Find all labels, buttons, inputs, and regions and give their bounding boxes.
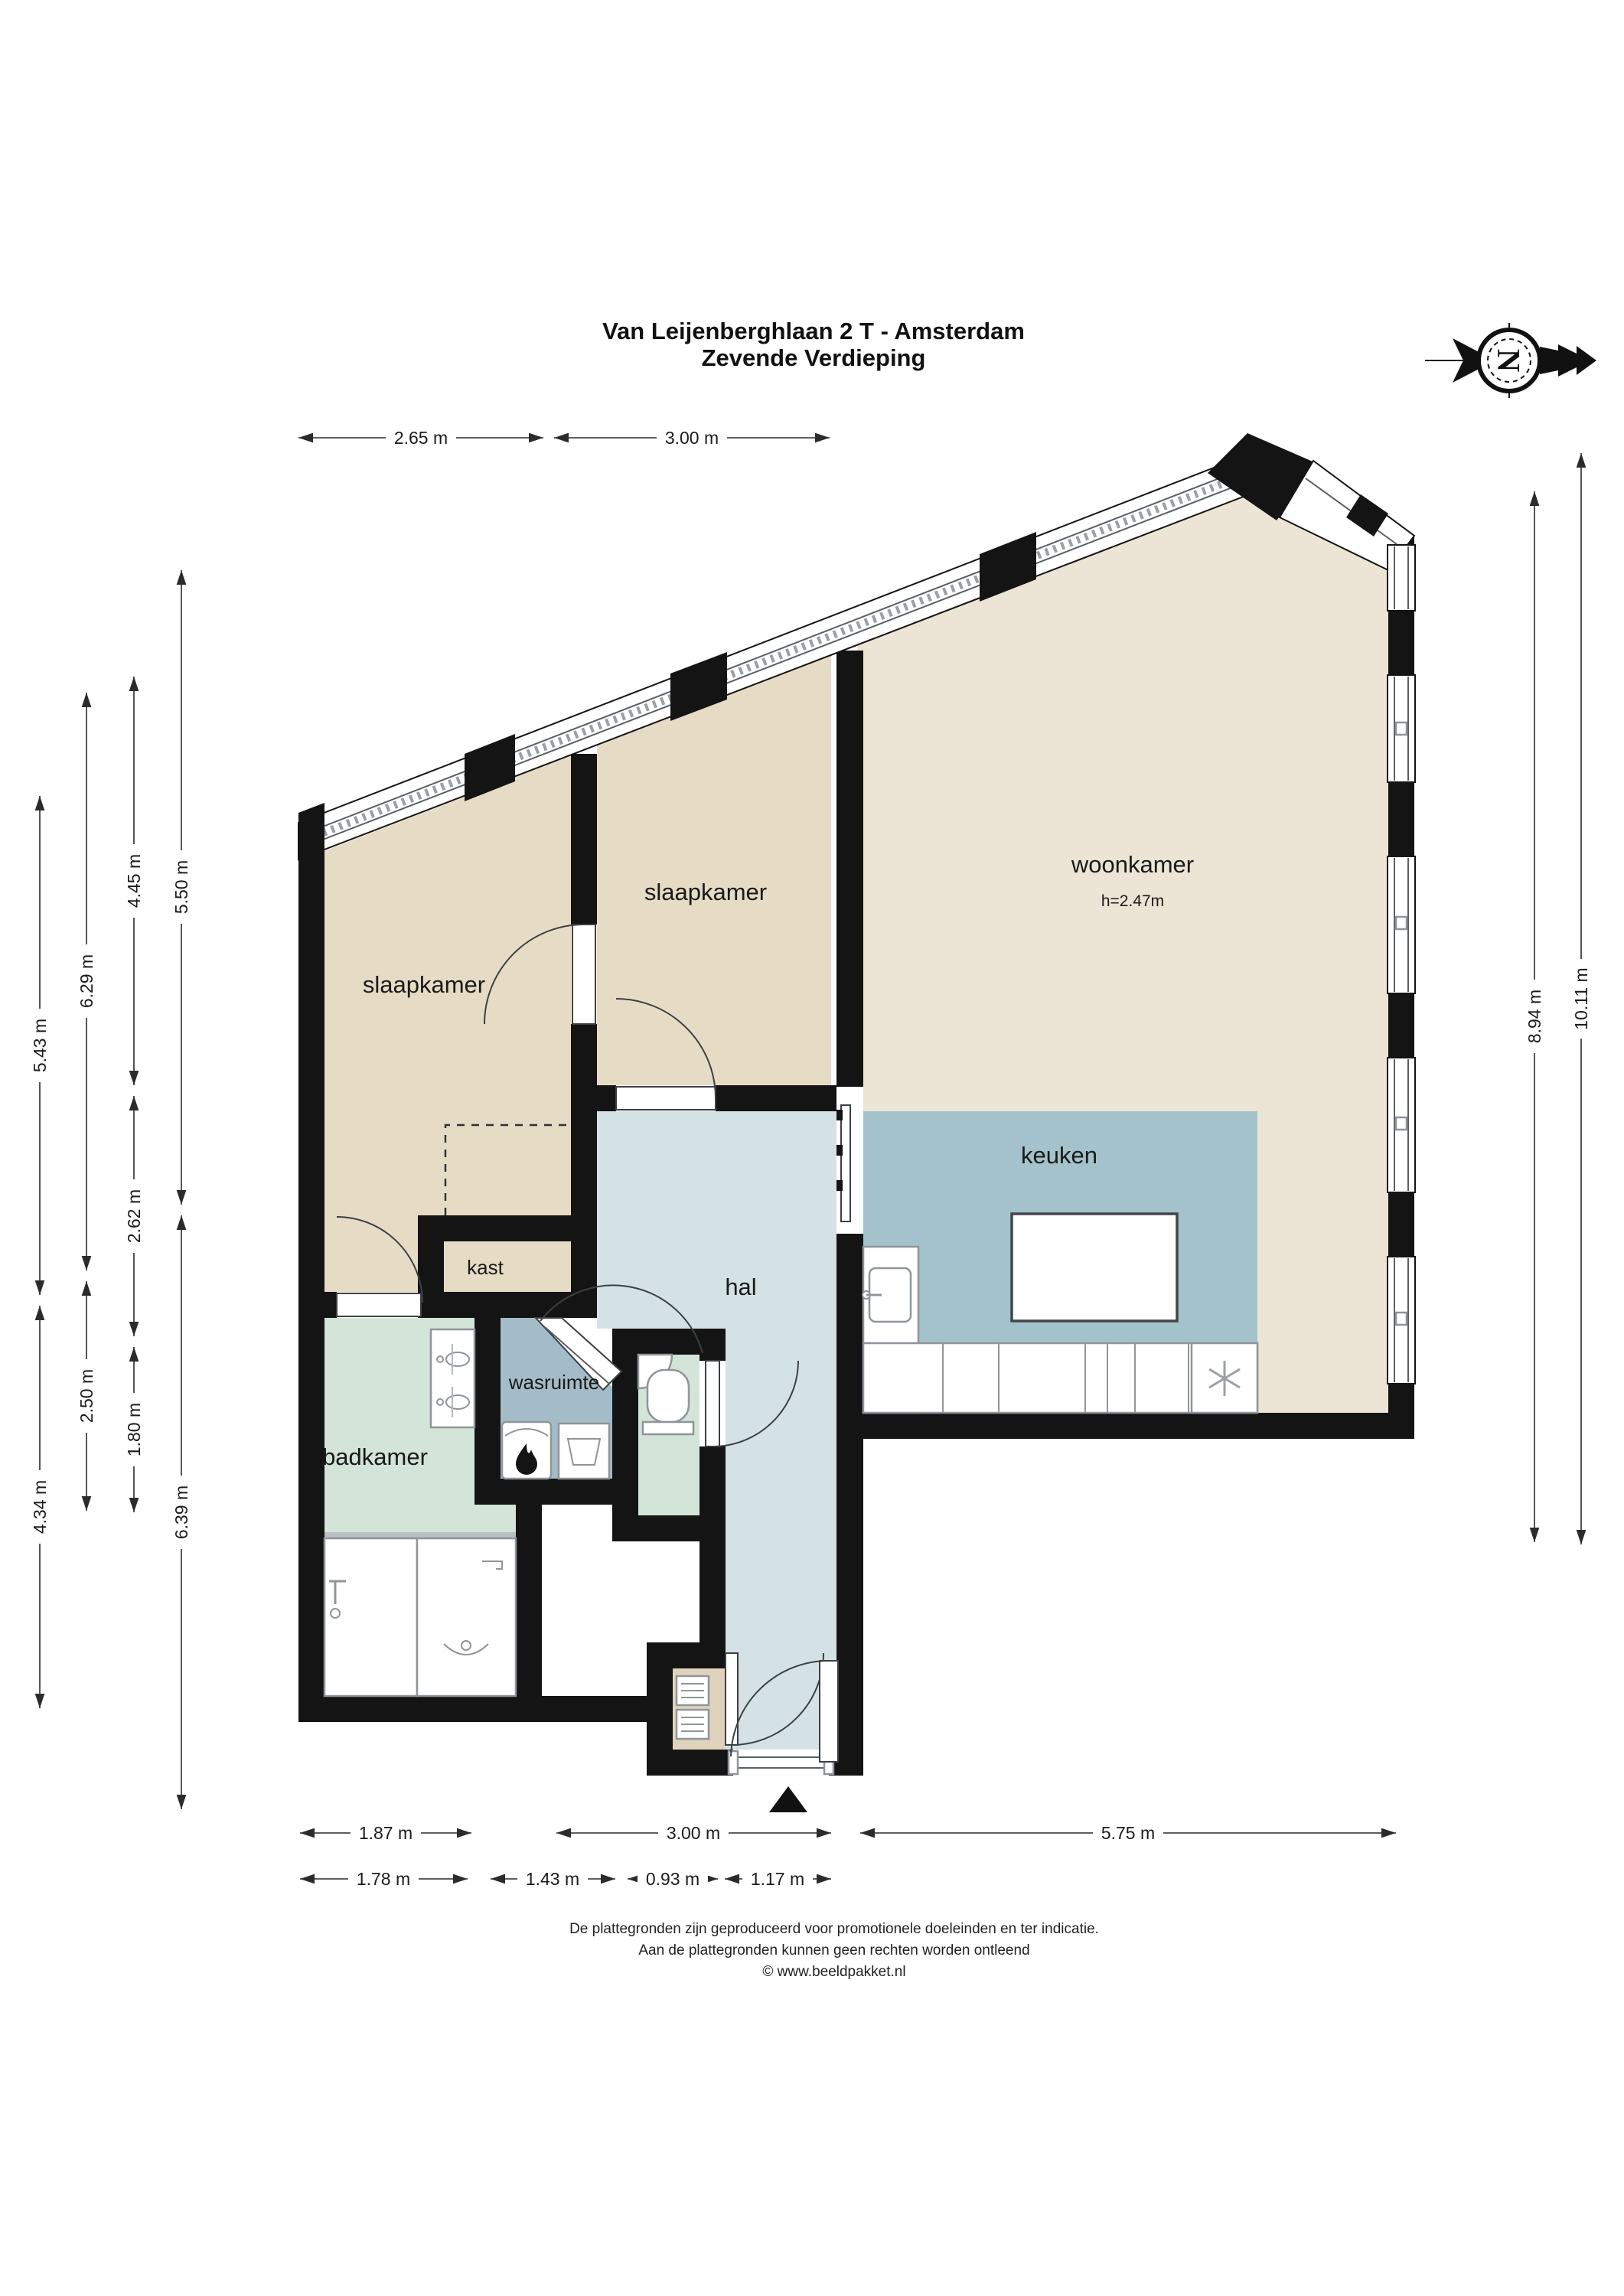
dim-bottom-a3: 5.75 m [860,1823,1396,1843]
svg-text:1.80 m: 1.80 m [124,1403,144,1456]
svg-text:6.39 m: 6.39 m [171,1486,191,1539]
wall-corridor-left [699,1541,726,1645]
entrance-arrow-icon [769,1786,807,1812]
svg-text:2.65 m: 2.65 m [394,428,448,448]
svg-text:0.93 m: 0.93 m [646,1869,699,1889]
wall-toilet-left [612,1329,638,1541]
wall-bottom-living [863,1413,1414,1439]
dim-left-a1: 5.43 m [28,796,51,1295]
wall-bedroom-divider-lower [571,1024,597,1318]
title-line2: Zevende Verdieping [702,344,926,371]
wall-left [298,813,324,1722]
dim-bottom-a2: 3.00 m [556,1823,831,1843]
svg-text:6.29 m: 6.29 m [77,954,96,1008]
dim-bottom-b4: 1.17 m [725,1869,831,1889]
svg-text:1.87 m: 1.87 m [359,1823,413,1843]
window-segment [1388,1058,1415,1192]
svg-text:5.50 m: 5.50 m [171,860,191,914]
dim-bottom-b3: 0.93 m [628,1869,718,1889]
footer-line2: Aan de plattegronden kunnen geen rechten… [638,1942,1029,1958]
dim-left-a2: 4.34 m [28,1306,51,1708]
dim-left-d1: 5.50 m [170,570,193,1205]
dim-left-b1: 6.29 m [75,693,98,1270]
svg-text:3.00 m: 3.00 m [665,428,719,448]
wall-meterkast-top [647,1642,726,1668]
dim-top-2: 3.00 m [554,428,830,448]
label-hal: hal [725,1274,756,1300]
wall-badkamer-right-lower [516,1505,542,1722]
label-slaapkamer-mid: slaapkamer [644,879,767,905]
dim-left-c1: 4.45 m [122,677,145,1085]
footer-line1: De plattegronden zijn geproduceerd voor … [569,1921,1099,1937]
title-line1: Van Leijenberghlaan 2 T - Amsterdam [602,318,1025,344]
plan-title: Van Leijenberghlaan 2 T - Amsterdam Zeve… [602,318,1025,371]
dim-left-d2: 6.39 m [170,1215,193,1809]
svg-text:1.17 m: 1.17 m [751,1869,804,1889]
label-wasruimte: wasruimte [508,1371,599,1394]
sliding-opening-woonkamer [836,1087,863,1234]
dim-left-c3: 1.80 m [122,1347,145,1512]
dim-left-c2: 2.62 m [122,1096,145,1336]
window-segment [1388,675,1415,782]
compass-letter: N [1490,349,1525,372]
dim-bottom-b2: 1.43 m [491,1869,615,1889]
dim-left-b2: 2.50 m [75,1281,98,1511]
window-segment [1388,545,1415,611]
label-ceiling-height: h=2.47m [1101,892,1164,910]
toilet-cistern [643,1422,693,1434]
footer-line3: © www.beeldpakket.nl [762,1964,905,1980]
svg-text:8.94 m: 8.94 m [1525,990,1544,1043]
floor-plan-page: Van Leijenberghlaan 2 T - Amsterdam Zeve… [0,0,1624,2296]
svg-text:5.43 m: 5.43 m [30,1019,50,1072]
svg-text:1.43 m: 1.43 m [526,1869,579,1889]
dim-right-2: 10.11 m [1570,453,1593,1544]
footer-disclaimer: De plattegronden zijn geproduceerd voor … [569,1921,1099,1980]
window-segment [1388,1257,1415,1384]
wall-slaapkamer-woonkamer [836,651,863,1087]
wall-slaapkamer2-hal-right [716,1085,836,1111]
wall-toilet-right-upper [699,1329,726,1361]
wall-entrance-bottom-left [647,1750,733,1776]
dim-bottom-a1: 1.87 m [300,1823,471,1843]
compass-north-icon: N [1425,323,1596,398]
dim-bottom-b1: 1.78 m [300,1869,468,1889]
wall-slaapkamer2-hal-left [597,1085,616,1111]
svg-text:2.50 m: 2.50 m [77,1369,96,1423]
dim-right-1: 8.94 m [1523,491,1546,1542]
toilet-bowl [647,1370,689,1422]
label-keuken: keuken [1021,1142,1097,1169]
label-badkamer: badkamer [322,1443,428,1470]
label-woonkamer: woonkamer [1071,851,1194,878]
floor-plan-canvas: Van Leijenberghlaan 2 T - Amsterdam Zeve… [0,0,1624,2296]
kitchen-island [1012,1214,1177,1321]
wall-bottom-left-block [298,1696,673,1722]
svg-text:4.45 m: 4.45 m [124,854,144,908]
label-kast: kast [467,1256,504,1279]
room-kast-floor [444,1241,571,1292]
svg-text:10.11 m: 10.11 m [1571,967,1591,1029]
washing-machine [559,1424,609,1479]
wall-corridor-right [836,1439,863,1776]
wall-kast-top [418,1215,597,1241]
wall-badkamer-wasruimte [474,1318,501,1505]
svg-text:4.34 m: 4.34 m [30,1480,50,1534]
svg-text:2.62 m: 2.62 m [124,1189,144,1243]
wall-hal-keuken [836,1234,863,1439]
label-slaapkamer-left: slaapkamer [363,971,485,998]
wall-bedroom-divider-upper [571,754,597,925]
svg-text:5.75 m: 5.75 m [1101,1823,1155,1843]
window-segment [1388,856,1415,993]
dim-top-1: 2.65 m [298,428,543,448]
wall-slaapkamer1-badkamer-left [298,1292,337,1318]
window-band-left-cap [298,803,324,859]
wall-toilet-right-lower [699,1446,726,1541]
svg-text:1.78 m: 1.78 m [357,1869,410,1889]
svg-text:3.00 m: 3.00 m [667,1823,720,1843]
